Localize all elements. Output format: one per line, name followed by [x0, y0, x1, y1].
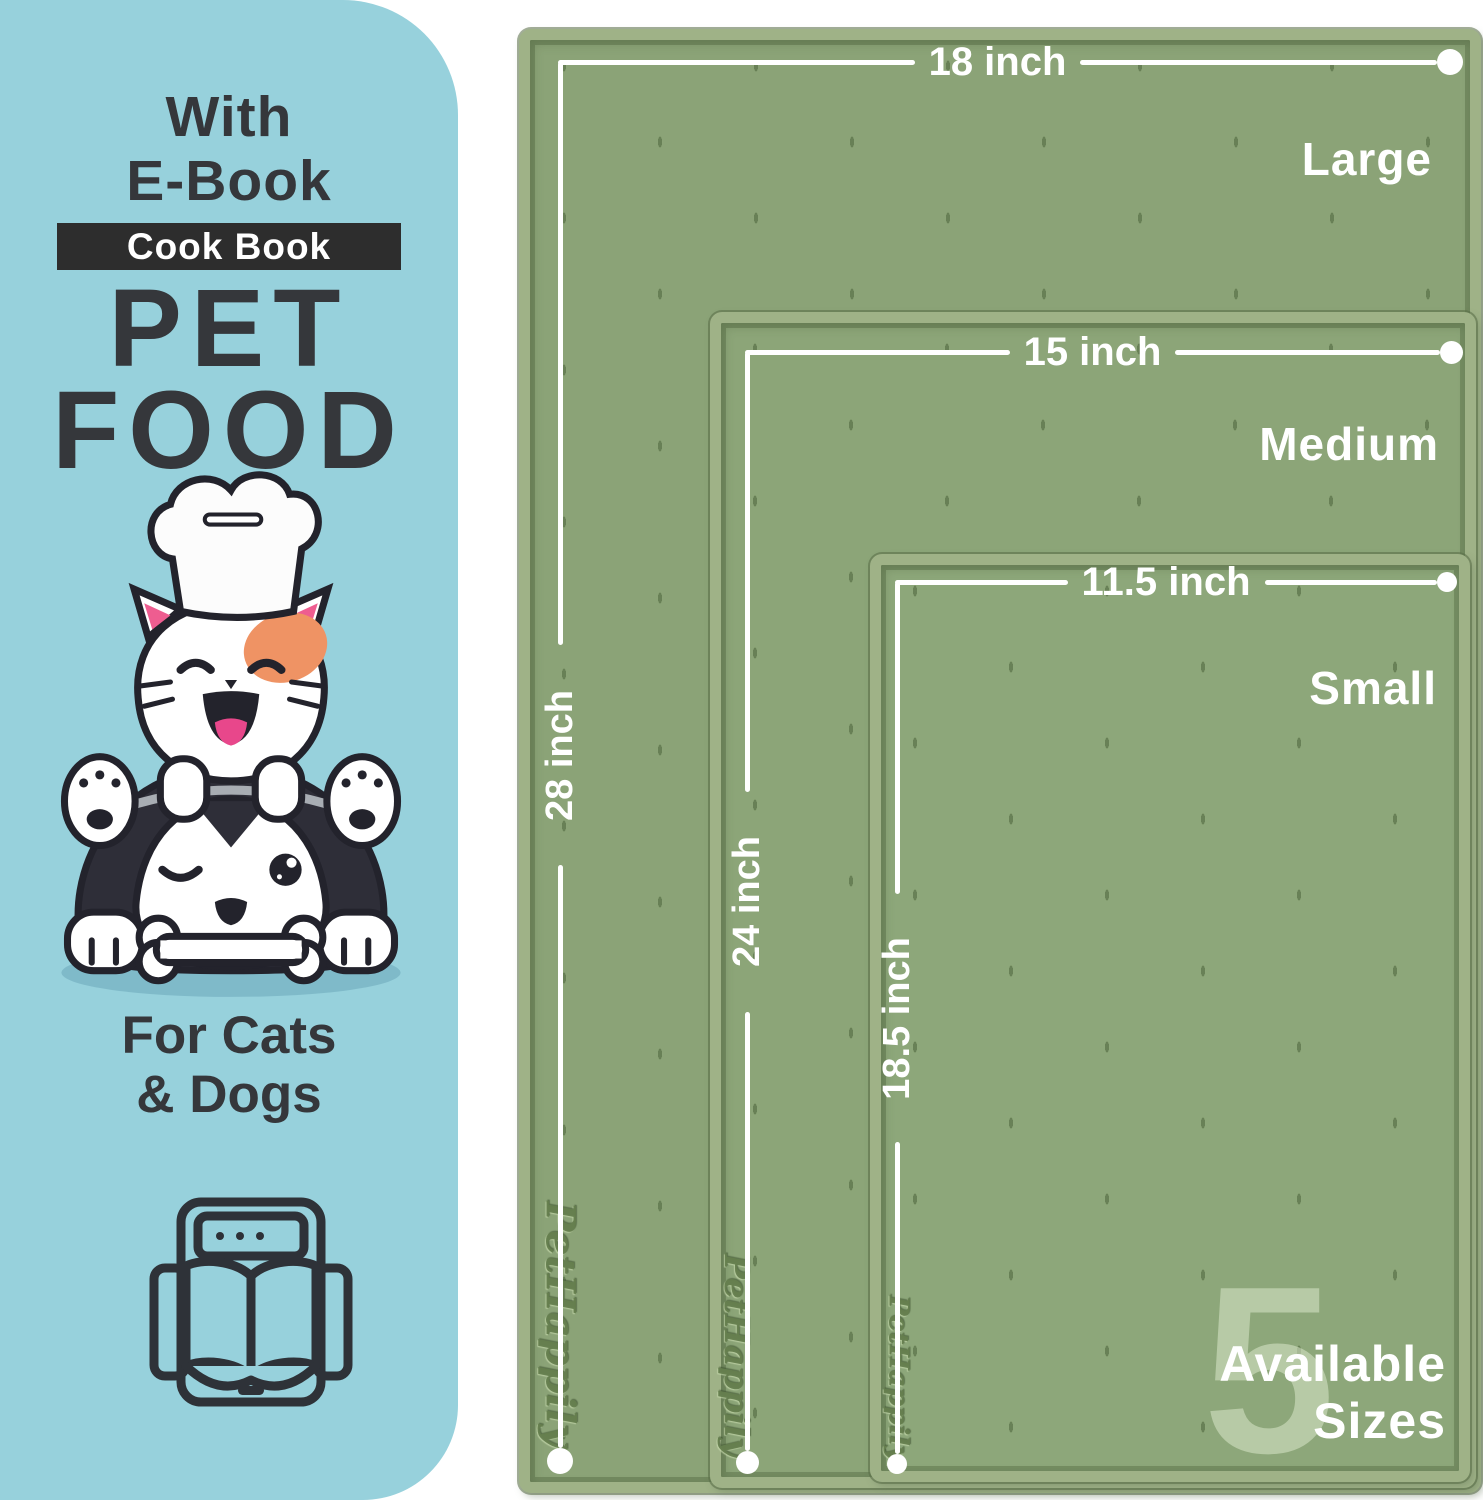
dim-line-small-height: 18.5 inch [877, 582, 917, 1474]
dim-line-small-width: 11.5 inch [895, 564, 1457, 600]
dim-endpoint-dot [1437, 49, 1463, 75]
available-sizes-label: Available Sizes [1219, 1336, 1446, 1449]
dim-endpoint-dot [1440, 341, 1463, 364]
dim-label-large-width: 18 inch [915, 40, 1081, 85]
dim-label-small-height: 18.5 inch [816, 894, 979, 1142]
dim-line [1080, 60, 1437, 65]
cookbook-badge: Cook Book [57, 223, 401, 270]
info-panel: With E-Book Cook Book PET FOOD [0, 0, 458, 1500]
dim-label-medium-width: 15 inch [1010, 330, 1176, 375]
pets-illustration [38, 462, 424, 1007]
dim-line-large-width: 18 inch [558, 44, 1463, 80]
dim-label-medium-height: 24 inch [682, 792, 813, 1012]
dim-endpoint-dot [887, 1454, 907, 1474]
dim-line [1265, 580, 1438, 585]
title-line1: PET [0, 278, 458, 380]
for-cats-dogs: For Cats & Dogs [0, 1006, 458, 1125]
dim-line [745, 352, 750, 792]
dim-endpoint-dot [736, 1451, 759, 1474]
dim-line [895, 580, 1068, 585]
dim-line [895, 582, 900, 894]
dim-line [745, 1012, 750, 1452]
dim-line [558, 60, 915, 65]
heading-line2: E-Book [0, 150, 458, 214]
product-image: With E-Book Cook Book PET FOOD [0, 0, 1483, 1500]
dim-endpoint-dot [1437, 572, 1457, 592]
heading-line1: With [0, 86, 458, 150]
dim-label-large-height: 28 inch [495, 645, 626, 865]
ebook-heading: With E-Book [0, 86, 458, 214]
dim-line-medium-width: 15 inch [745, 334, 1463, 370]
dim-line [1175, 350, 1440, 355]
dim-line [558, 865, 563, 1448]
mat-medium-label: Medium [1259, 417, 1439, 471]
dim-line-medium-height: 24 inch [727, 352, 767, 1474]
dim-endpoint-dot [547, 1448, 573, 1474]
dim-line [558, 62, 563, 645]
available-line: Available [1219, 1336, 1446, 1393]
subtitle-line2: & Dogs [0, 1065, 458, 1124]
pet-food-title: PET FOOD [0, 278, 458, 483]
dim-line-large-height: 28 inch [540, 62, 580, 1474]
dim-label-small-width: 11.5 inch [1068, 560, 1265, 605]
ebook-tablet-icon [145, 1196, 357, 1411]
dim-line [895, 1142, 900, 1454]
mat-small-label: Small [1309, 661, 1437, 715]
dim-line [745, 350, 1010, 355]
mat-large-label: Large [1302, 132, 1432, 186]
subtitle-line1: For Cats [0, 1006, 458, 1065]
sizes-line: Sizes [1219, 1393, 1446, 1450]
